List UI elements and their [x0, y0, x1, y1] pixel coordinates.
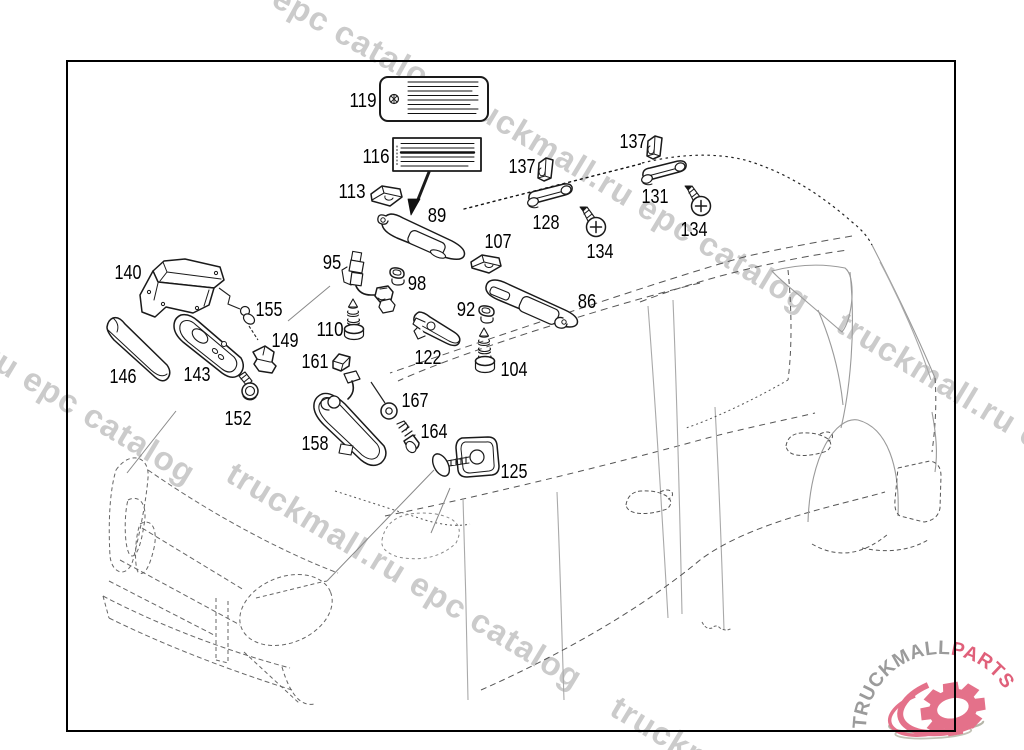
svg-text:146: 146 [110, 366, 137, 388]
svg-text:128: 128 [533, 212, 560, 234]
svg-text:131: 131 [642, 186, 669, 208]
svg-text:92: 92 [457, 299, 476, 321]
svg-text:134: 134 [681, 219, 708, 241]
svg-text:167: 167 [402, 390, 429, 412]
svg-text:107: 107 [485, 231, 512, 253]
svg-text:158: 158 [302, 433, 329, 455]
svg-text:137: 137 [620, 131, 647, 153]
svg-text:164: 164 [421, 421, 448, 443]
svg-text:119: 119 [350, 90, 377, 112]
svg-text:149: 149 [272, 330, 299, 352]
svg-text:134: 134 [587, 241, 614, 263]
svg-text:137: 137 [509, 156, 536, 178]
svg-text:161: 161 [302, 351, 329, 373]
svg-text:116: 116 [363, 146, 390, 168]
svg-text:152: 152 [225, 408, 252, 430]
svg-text:89: 89 [428, 205, 447, 227]
svg-text:110: 110 [317, 319, 344, 341]
svg-text:122: 122 [415, 347, 442, 369]
svg-text:98: 98 [408, 273, 427, 295]
svg-text:113: 113 [339, 181, 366, 203]
svg-text:140: 140 [115, 262, 142, 284]
svg-text:95: 95 [323, 252, 342, 274]
svg-text:143: 143 [184, 364, 211, 386]
svg-text:155: 155 [256, 299, 283, 321]
svg-text:86: 86 [578, 291, 597, 313]
svg-text:104: 104 [501, 359, 528, 381]
svg-text:125: 125 [501, 461, 528, 483]
